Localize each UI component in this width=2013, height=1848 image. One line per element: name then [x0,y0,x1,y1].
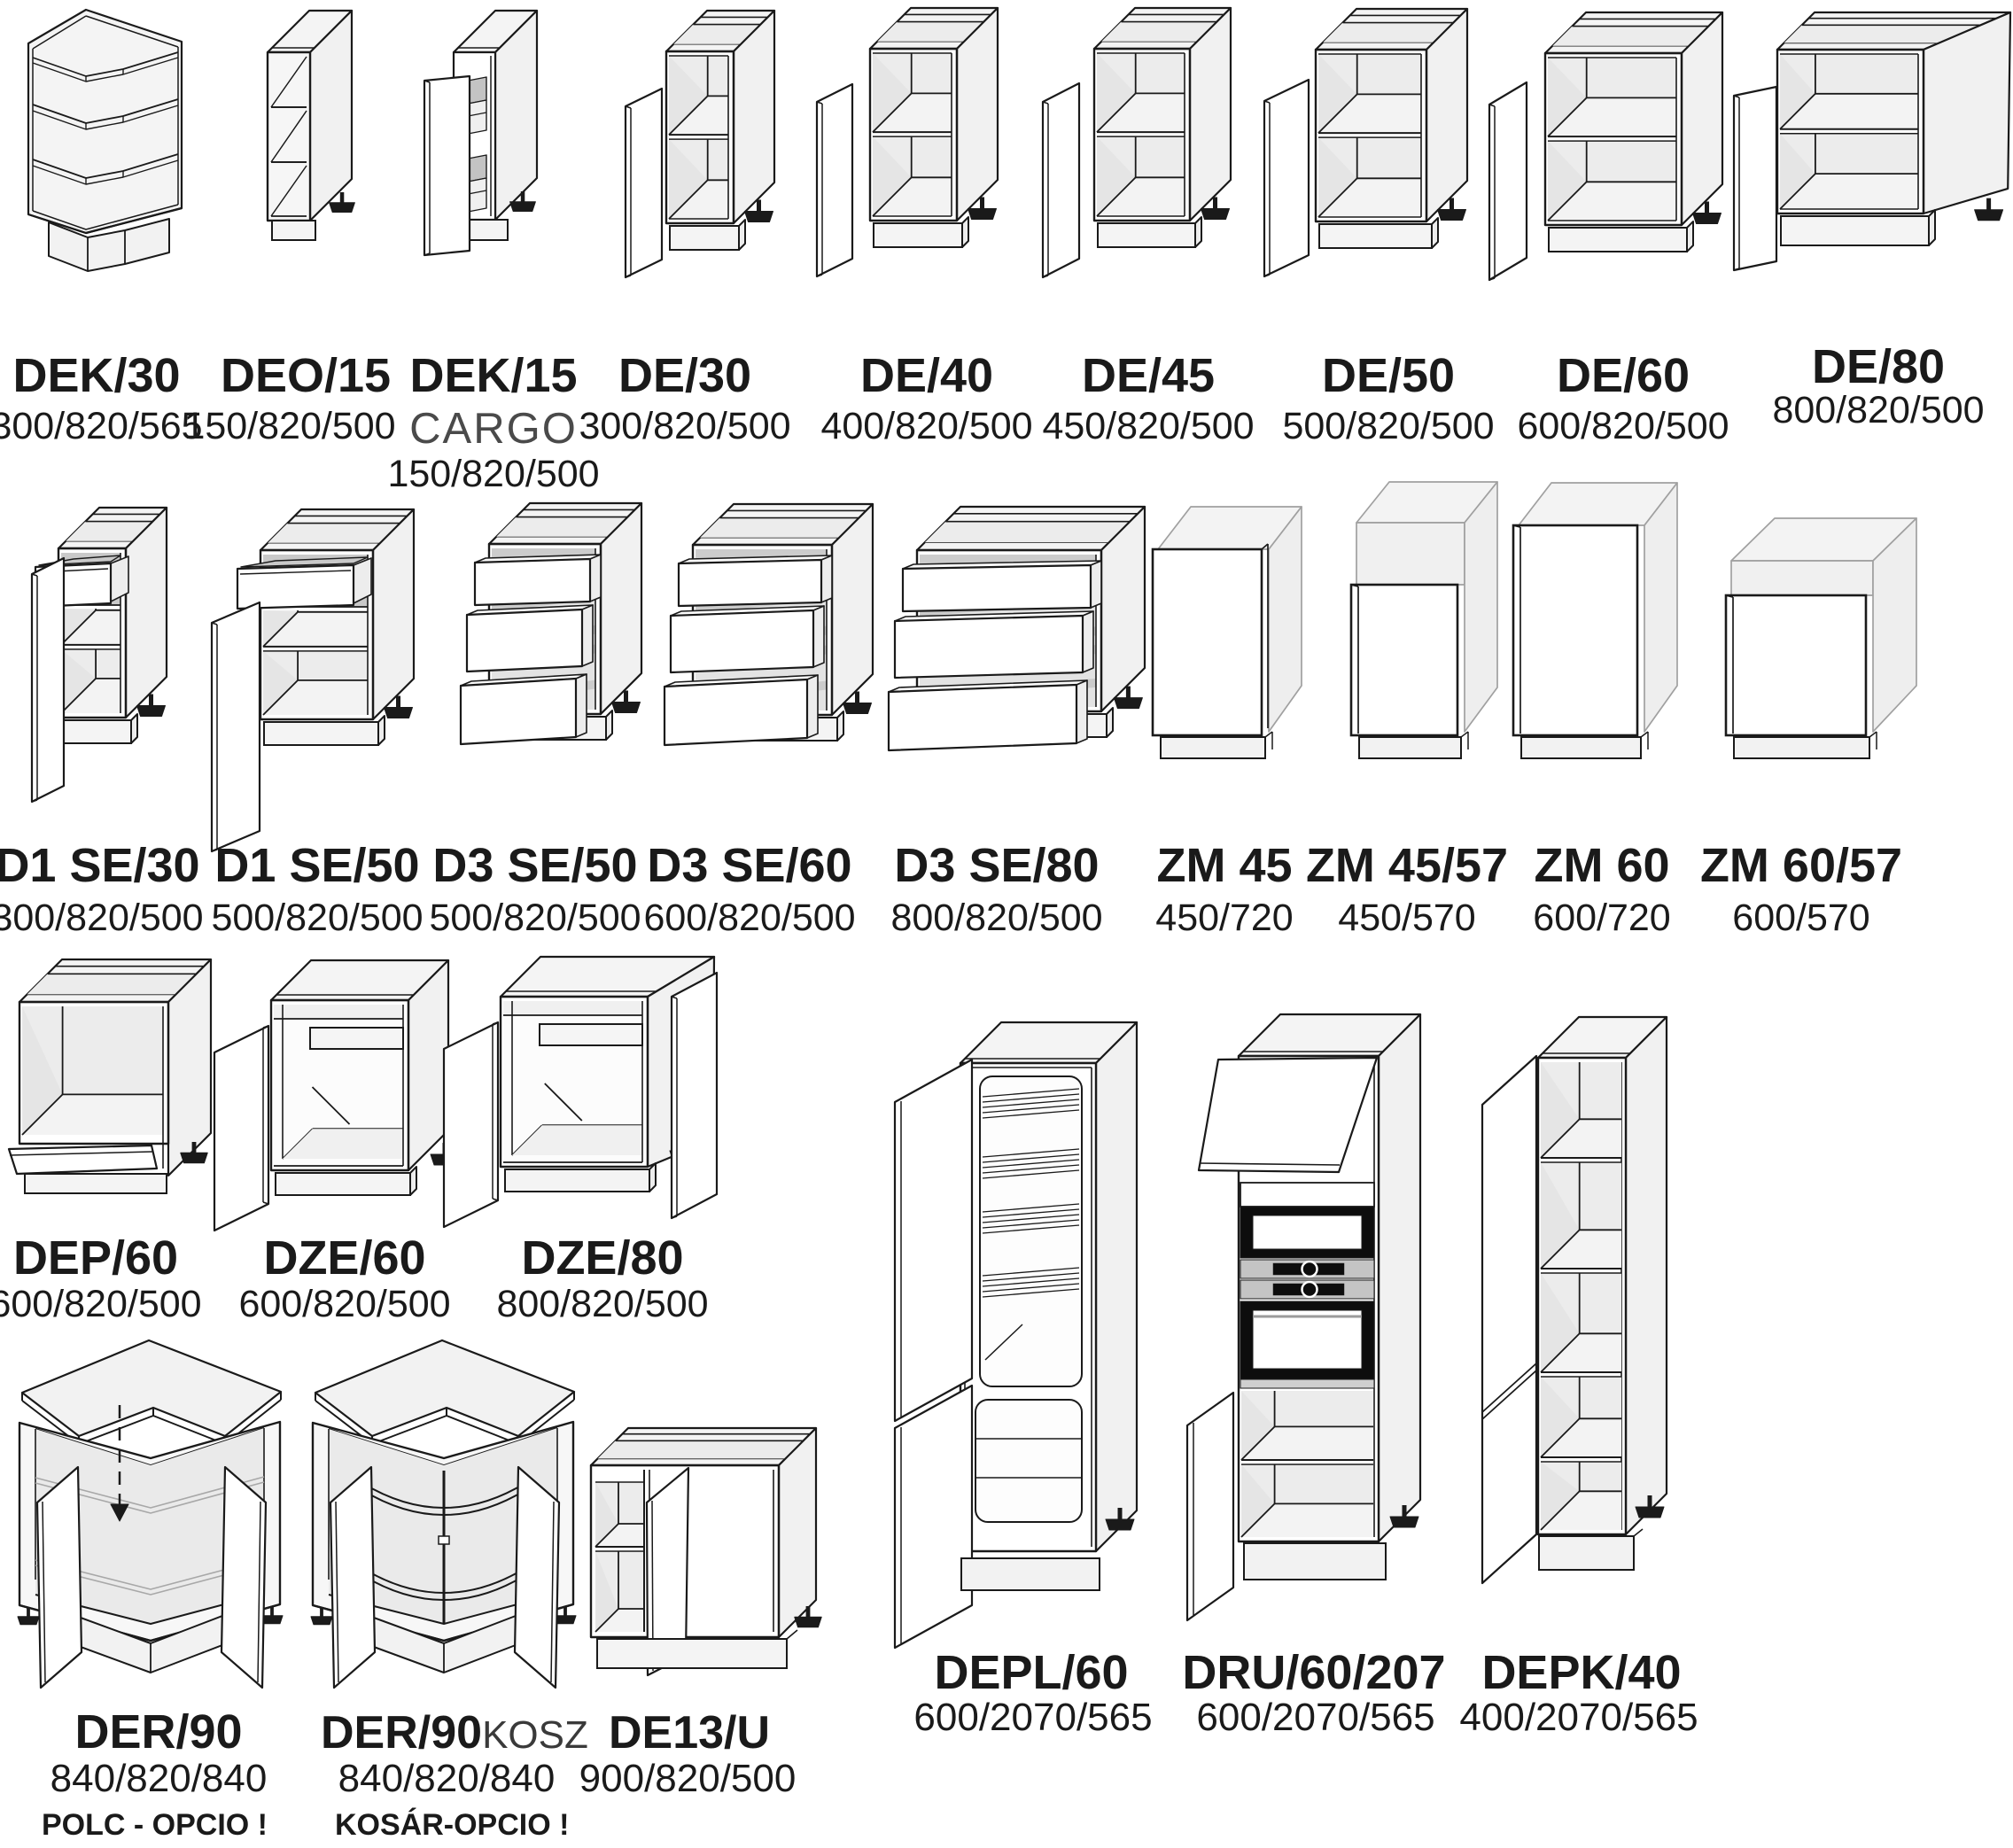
svg-text:DEK/15: DEK/15 [409,349,577,402]
svg-text:600/820/500: 600/820/500 [238,1283,450,1325]
svg-text:150/820/500: 150/820/500 [183,405,395,447]
svg-text:DE/30: DE/30 [618,349,751,402]
svg-text:DEPK/40: DEPK/40 [1481,1646,1681,1699]
svg-text:DE/50: DE/50 [1322,349,1455,402]
svg-text:DEO/15: DEO/15 [221,349,391,402]
svg-text:800/820/500: 800/820/500 [1772,389,1984,431]
svg-text:500/820/500: 500/820/500 [211,897,423,939]
svg-text:DER/90KOSZ: DER/90KOSZ [321,1707,588,1759]
svg-text:DEP/60: DEP/60 [13,1231,178,1285]
svg-text:CARGO: CARGO [409,405,578,453]
svg-text:600/820/500: 600/820/500 [1517,405,1729,447]
svg-text:DE/60: DE/60 [1557,349,1690,402]
svg-text:300/820/500: 300/820/500 [0,897,204,939]
svg-text:D3 SE/80: D3 SE/80 [894,839,1099,892]
svg-text:450/570: 450/570 [1338,897,1475,939]
svg-text:ZM 60: ZM 60 [1534,839,1669,892]
svg-text:600/2070/565: 600/2070/565 [913,1696,1152,1739]
svg-text:500/820/500: 500/820/500 [1282,405,1494,447]
svg-text:DZE/80: DZE/80 [521,1231,683,1285]
svg-text:POLC - OPCIO !: POLC - OPCIO ! [42,1808,268,1842]
svg-text:450/720: 450/720 [1155,897,1293,939]
svg-text:400/2070/565: 400/2070/565 [1459,1696,1698,1739]
svg-text:DE/80: DE/80 [1812,340,1945,393]
svg-text:800/820/500: 800/820/500 [496,1283,708,1325]
svg-text:D1 SE/30: D1 SE/30 [0,839,200,892]
svg-text:300/820/565: 300/820/565 [0,405,203,447]
svg-text:DE/40: DE/40 [860,349,993,402]
svg-text:400/820/500: 400/820/500 [820,405,1032,447]
svg-text:D3 SE/60: D3 SE/60 [647,839,851,892]
svg-text:600/2070/565: 600/2070/565 [1196,1696,1434,1739]
svg-text:800/820/500: 800/820/500 [890,897,1102,939]
svg-text:DEK/30: DEK/30 [12,349,180,402]
svg-text:900/820/500: 900/820/500 [579,1757,797,1800]
svg-text:600/820/500: 600/820/500 [0,1283,202,1325]
svg-text:600/570: 600/570 [1732,897,1869,939]
svg-text:DRU/60/207: DRU/60/207 [1182,1646,1445,1699]
svg-text:840/820/840: 840/820/840 [51,1757,268,1800]
svg-text:D3 SE/50: D3 SE/50 [432,839,637,892]
svg-text:600/720: 600/720 [1533,897,1670,939]
svg-text:DZE/60: DZE/60 [263,1231,425,1285]
svg-text:DER/90: DER/90 [74,1705,242,1759]
svg-text:600/820/500: 600/820/500 [643,897,855,939]
svg-text:ZM 60/57: ZM 60/57 [1700,839,1902,892]
svg-text:DEPL/60: DEPL/60 [934,1646,1128,1699]
svg-text:450/820/500: 450/820/500 [1042,405,1254,447]
svg-text:500/820/500: 500/820/500 [429,897,641,939]
svg-text:ZM 45: ZM 45 [1156,839,1292,892]
svg-text:DE13/U: DE13/U [609,1707,770,1759]
svg-text:DE/45: DE/45 [1082,349,1215,402]
svg-text:150/820/500: 150/820/500 [387,453,599,495]
svg-text:840/820/840: 840/820/840 [338,1757,556,1800]
svg-text:300/820/500: 300/820/500 [579,405,790,447]
svg-text:D1 SE/50: D1 SE/50 [214,839,419,892]
svg-text:ZM 45/57: ZM 45/57 [1306,839,1508,892]
svg-text:KOSÁR-OPCIO !: KOSÁR-OPCIO ! [335,1808,569,1842]
